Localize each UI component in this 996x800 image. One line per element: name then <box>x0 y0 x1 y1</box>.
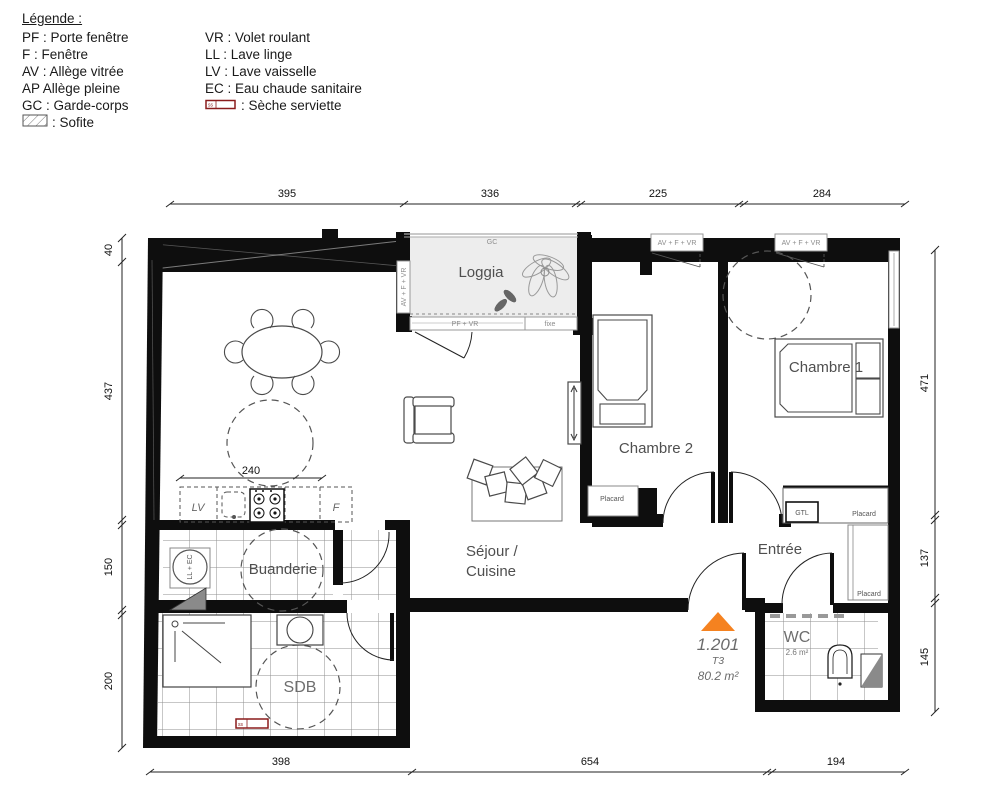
placard-chambre2-label: Placard <box>600 496 624 503</box>
chambre1-door-leaf <box>729 472 733 523</box>
sdb-sink <box>277 615 323 645</box>
radiator <box>568 382 581 444</box>
wc-door-swing <box>782 553 832 604</box>
pf-vr-label: PF + VR <box>452 321 479 328</box>
svg-text:437: 437 <box>103 382 115 400</box>
unit-number: 1.201 <box>697 635 740 654</box>
svg-text:336: 336 <box>481 188 499 200</box>
room-label-sejour-2: Cuisine <box>466 563 516 580</box>
gc-label: GC <box>487 239 498 246</box>
svg-text:395: 395 <box>278 188 296 200</box>
chambre2-door-leaf <box>711 472 715 523</box>
room-label-chambre2: Chambre 2 <box>619 440 693 457</box>
svg-text:145: 145 <box>919 648 931 666</box>
gtl-label: GTL <box>795 510 809 517</box>
unit-type: T3 <box>712 655 724 667</box>
dimensions-left: 40 437 150 200 <box>103 234 126 752</box>
fixe-label: fixe <box>545 321 556 328</box>
closets: Placard GTL Placard Placard <box>588 486 888 600</box>
loggia-door-swing <box>464 332 472 358</box>
kitchen-sink <box>222 492 245 517</box>
shower <box>163 615 251 687</box>
chambre1-door-swing <box>731 472 782 523</box>
dimensions-bottom: 398 654 194 <box>146 756 909 775</box>
ss-label: ss <box>238 722 244 728</box>
dimensions-right: 471 137 145 <box>919 246 939 716</box>
entrance-triangle-icon <box>701 612 735 631</box>
bed-chambre2 <box>593 315 652 427</box>
svg-text:654: 654 <box>581 756 599 768</box>
room-label-buanderie: Buanderie <box>249 561 317 578</box>
room-label-wc: WC <box>784 629 811 646</box>
wc-corner-soffit <box>861 654 882 687</box>
room-label-entree: Entrée <box>758 541 802 558</box>
washing-machine: LL + EC <box>170 548 210 588</box>
armchair <box>404 397 454 443</box>
sofa <box>467 457 562 521</box>
room-label-sejour-1: Séjour / <box>466 543 519 560</box>
loggia-door-leaf <box>415 332 464 358</box>
av-f-vr-label-chambre2: AV + F + VR <box>658 240 697 247</box>
kitchen-dimension: 240 <box>242 465 260 477</box>
av-f-vr-label-sejour: AV + F + VR <box>401 268 408 307</box>
svg-text:150: 150 <box>103 558 115 576</box>
sdb-door-leaf <box>390 613 394 661</box>
entry-door-leaf <box>742 553 746 610</box>
svg-text:398: 398 <box>272 756 290 768</box>
svg-text:40: 40 <box>103 244 115 256</box>
kitchen-counter: LV F 240 <box>176 465 352 522</box>
svg-text:471: 471 <box>919 374 931 392</box>
chambre2-door-swing <box>663 472 714 523</box>
placard-entree-label: Placard <box>857 591 881 598</box>
ll-ec-label: LL + EC <box>187 554 194 579</box>
wc-door-leaf <box>830 553 834 605</box>
entry-door-swing <box>688 553 744 610</box>
unit-area: 80.2 m² <box>698 669 740 683</box>
svg-text:137: 137 <box>919 549 931 567</box>
placard-chambre1-label: Placard <box>852 511 876 518</box>
svg-text:225: 225 <box>649 188 667 200</box>
bed-chambre1 <box>775 339 883 417</box>
wc-area-label: 2.6 m² <box>786 648 809 657</box>
lave-vaisselle-label: LV <box>192 502 207 514</box>
room-label-loggia: Loggia <box>458 264 504 281</box>
svg-text:200: 200 <box>103 672 115 690</box>
unit-marker: 1.201 T3 80.2 m² <box>697 612 740 683</box>
stove <box>250 489 284 522</box>
f-label: F <box>333 502 341 514</box>
room-label-chambre1: Chambre 1 <box>789 359 863 376</box>
room-label-sdb: SDB <box>284 679 317 696</box>
floor-plan-page: Légende : PF : Porte fenêtre F : Fenêtre… <box>0 0 996 800</box>
av-f-vr-label-chambre1: AV + F + VR <box>782 240 821 247</box>
svg-text:194: 194 <box>827 756 845 768</box>
svg-text:284: 284 <box>813 188 831 200</box>
floor-plan-drawing: GC PF + VR fixe AV + F + VR AV + F + VR … <box>0 0 996 800</box>
dimensions-top: 395 336 225 284 <box>166 188 909 207</box>
towel-dryer: ss <box>236 719 268 728</box>
dining-set <box>224 309 339 394</box>
